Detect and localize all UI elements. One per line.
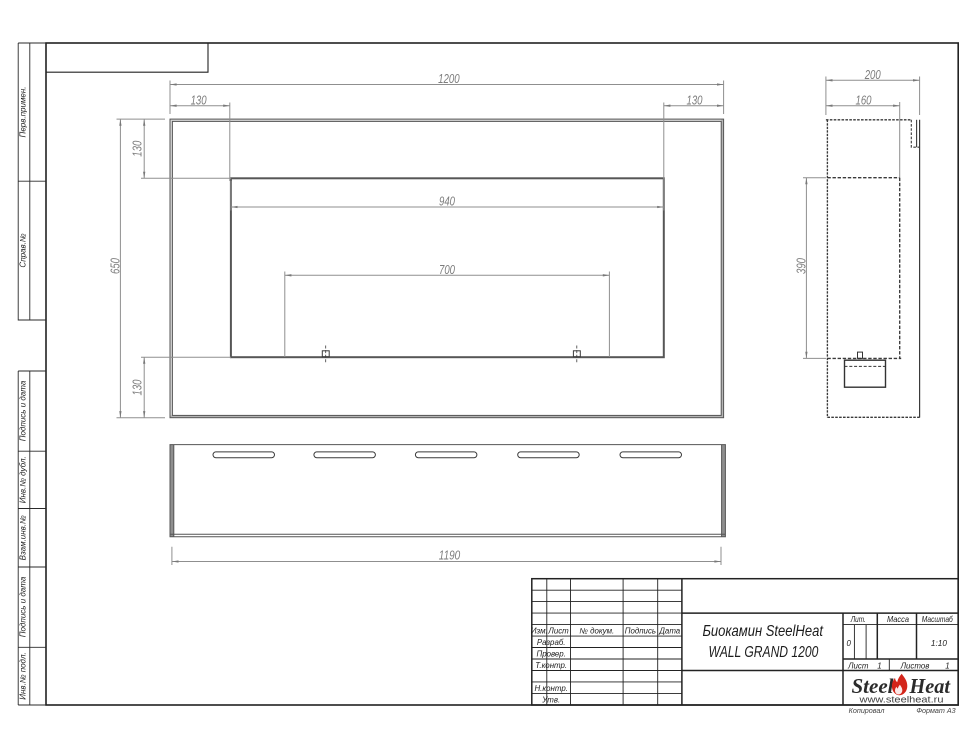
svg-text:Взам.инв.№: Взам.инв.№	[19, 515, 28, 560]
svg-text:Подпись: Подпись	[625, 627, 656, 636]
svg-text:Изм.: Изм.	[531, 627, 548, 636]
svg-text:Копировал: Копировал	[849, 706, 885, 715]
svg-text:Лит.: Лит.	[850, 615, 866, 624]
svg-text:Масштаб: Масштаб	[922, 615, 953, 624]
svg-text:Подпись и дата: Подпись и дата	[19, 380, 28, 441]
svg-text:Перв.примен.: Перв.примен.	[19, 87, 28, 138]
svg-text:Лист: Лист	[547, 627, 569, 636]
svg-text:130: 130	[191, 92, 208, 107]
svg-text:Формат А3: Формат А3	[916, 706, 955, 715]
svg-text:390: 390	[794, 257, 809, 274]
svg-text:700: 700	[439, 262, 456, 277]
svg-text:1200: 1200	[438, 71, 460, 86]
svg-text:650: 650	[108, 257, 123, 274]
svg-text:Дата: Дата	[658, 627, 680, 636]
svg-text:Листов: Листов	[900, 661, 930, 670]
svg-text:Инв.№ подл.: Инв.№ подл.	[19, 652, 28, 699]
svg-text:0: 0	[847, 639, 852, 648]
svg-text:WALL GRAND 1200: WALL GRAND 1200	[709, 644, 819, 661]
svg-text:Инв.№ дубл.: Инв.№ дубл.	[19, 456, 28, 503]
svg-text:1:10: 1:10	[931, 639, 948, 648]
svg-text:Провер.: Провер.	[536, 650, 565, 659]
svg-text:1: 1	[877, 661, 881, 670]
svg-text:160: 160	[856, 92, 873, 107]
svg-text:№ докум.: № докум.	[579, 627, 614, 636]
svg-text:Т.контр.: Т.контр.	[535, 661, 567, 670]
svg-text:130: 130	[130, 140, 145, 157]
svg-text:1190: 1190	[439, 547, 461, 562]
svg-text:130: 130	[687, 92, 704, 107]
svg-text:Лист: Лист	[847, 661, 869, 670]
svg-text:www.steelheat.ru: www.steelheat.ru	[858, 694, 943, 705]
svg-text:1: 1	[945, 661, 949, 670]
svg-text:Разраб.: Разраб.	[537, 638, 566, 647]
svg-text:Масса: Масса	[887, 615, 910, 624]
svg-text:Н.контр.: Н.контр.	[534, 684, 567, 693]
svg-text:Биокамин SteelHeat: Биокамин SteelHeat	[702, 623, 823, 640]
svg-text:200: 200	[864, 67, 881, 82]
svg-text:940: 940	[439, 194, 456, 209]
svg-text:Подпись и дата: Подпись и дата	[19, 576, 28, 637]
svg-text:Утв.: Утв.	[541, 695, 560, 704]
svg-text:130: 130	[130, 379, 145, 396]
svg-text:Справ.№: Справ.№	[19, 233, 28, 267]
